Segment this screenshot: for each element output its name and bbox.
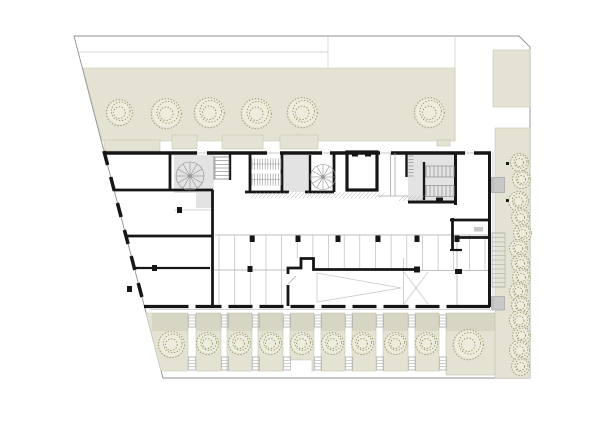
terrace: [290, 313, 314, 331]
planter-box: [172, 135, 197, 149]
column: [376, 236, 381, 243]
terrace: [321, 313, 345, 331]
column: [296, 236, 301, 243]
entry-pad: [492, 297, 505, 311]
planter-box: [280, 135, 318, 149]
column: [336, 236, 341, 243]
terrace: [196, 313, 221, 331]
terrace: [446, 313, 495, 331]
terrace: [258, 313, 283, 331]
terrace: [383, 313, 408, 331]
column: [455, 236, 460, 243]
shaft-stub: [365, 153, 371, 157]
planter-box: [222, 135, 263, 149]
column: [248, 266, 253, 272]
core-floor: [284, 155, 310, 192]
terrace: [227, 313, 252, 331]
floor-plan: [0, 0, 600, 424]
lawn-top-band: [83, 68, 455, 141]
shaft-stub: [352, 153, 358, 157]
entry-pad: [492, 178, 505, 193]
marker-dot: [506, 162, 509, 165]
column: [414, 267, 420, 273]
column: [177, 207, 182, 213]
column: [250, 236, 255, 243]
terrace: [415, 313, 439, 331]
lawn-right-top: [493, 50, 530, 107]
spiral-stair: [311, 165, 336, 190]
site-plan-page: [0, 0, 600, 424]
door-plate: [474, 227, 483, 232]
column: [127, 286, 132, 292]
terrace: [352, 313, 376, 331]
column: [436, 198, 443, 203]
column: [455, 269, 462, 274]
column: [152, 265, 157, 271]
column: [415, 236, 420, 243]
planter-box: [437, 140, 450, 146]
spiral-stair: [176, 162, 204, 190]
planter-box: [104, 140, 160, 151]
storage-room: [347, 152, 377, 190]
core-ladder: [409, 156, 414, 176]
terrace: [152, 313, 188, 331]
